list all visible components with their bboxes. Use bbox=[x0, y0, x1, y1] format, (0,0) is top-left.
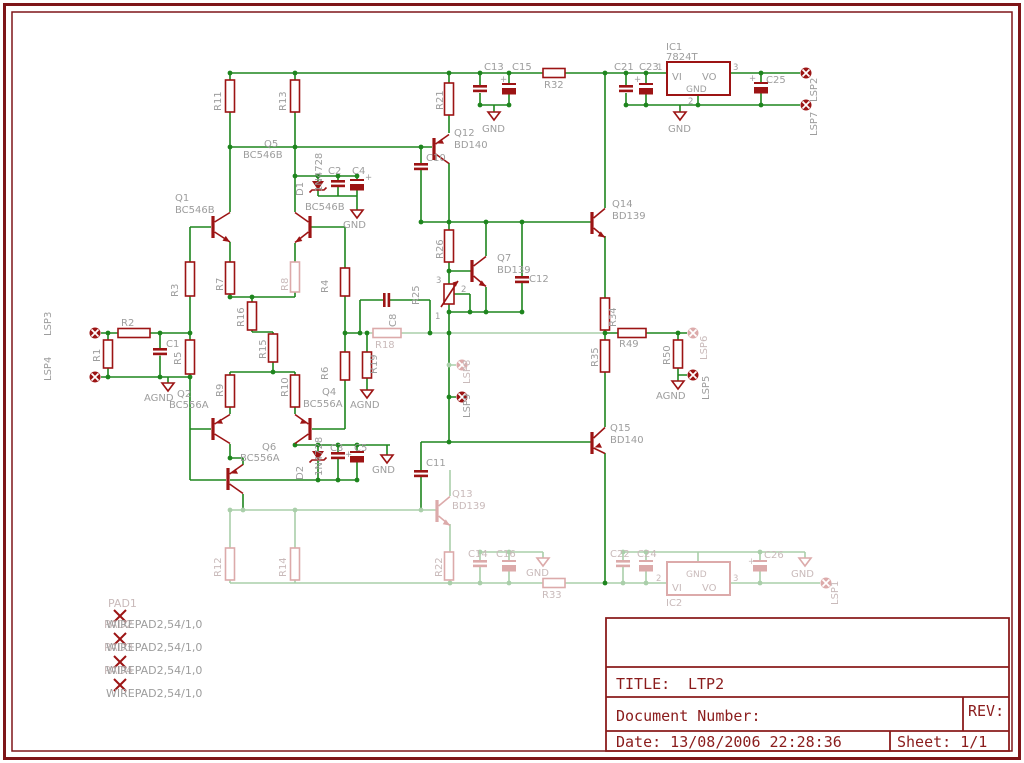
label-c23-plus: + bbox=[634, 75, 641, 85]
ic1-pin-vi: VI bbox=[672, 72, 682, 83]
gnd-symbol-c13 bbox=[488, 112, 500, 120]
label-q13: Q13 bbox=[452, 489, 473, 500]
label-q5-value: BC546B bbox=[243, 150, 283, 161]
label-r25: R25 bbox=[411, 285, 422, 305]
cap-c2 bbox=[331, 180, 345, 187]
label-r5: R5 bbox=[173, 352, 184, 365]
transistor-q2 bbox=[211, 415, 230, 444]
label-r19: R19 bbox=[369, 354, 380, 374]
label-lsp9: LSP9 bbox=[462, 394, 473, 418]
agnd-symbol-input bbox=[162, 383, 174, 391]
ic2-name: IC2 bbox=[666, 598, 682, 609]
gnd-symbol-d2 bbox=[381, 455, 393, 463]
pad-lsp6 bbox=[688, 328, 699, 339]
label-gnd-ic1: GND bbox=[668, 124, 691, 135]
label-q4-value: BC556A bbox=[303, 399, 343, 410]
label-r16: R16 bbox=[236, 307, 247, 327]
label-lsp1: LSP1 bbox=[830, 581, 841, 605]
label-r11: R11 bbox=[213, 91, 224, 111]
ic1-pin2-number: 2 bbox=[688, 97, 693, 107]
ic2-pin-vi: VI bbox=[672, 583, 682, 594]
label-gnd-c14: GND bbox=[526, 568, 549, 579]
label-c25: C25 bbox=[766, 75, 786, 86]
label-c5-plus: + bbox=[345, 450, 352, 460]
resistor-r35 bbox=[601, 340, 610, 372]
transistor-q1 bbox=[211, 213, 230, 243]
resistor-r22 bbox=[445, 552, 454, 580]
label-r49: R49 bbox=[619, 339, 639, 350]
pad-lsp3 bbox=[90, 328, 101, 339]
label-r2: R2 bbox=[121, 318, 134, 329]
label-c4: C4 bbox=[352, 166, 365, 177]
gnd-symbol-ic1 bbox=[674, 112, 686, 120]
label-q12-value: BD140 bbox=[454, 140, 488, 151]
label-q6: Q6 bbox=[262, 442, 276, 453]
resistor-r3 bbox=[186, 262, 195, 296]
resistor-r7 bbox=[226, 262, 235, 294]
label-pad1: PAD1 bbox=[108, 597, 137, 610]
label-c8: C8 bbox=[388, 314, 399, 327]
label-d2: D2 bbox=[295, 466, 306, 480]
cap-c21 bbox=[619, 85, 633, 92]
resistor-r32 bbox=[543, 69, 565, 78]
cap-c14 bbox=[473, 560, 487, 567]
label-r21: R21 bbox=[435, 90, 446, 110]
label-c4-plus: + bbox=[365, 173, 372, 183]
label-r26: R26 bbox=[435, 239, 446, 259]
cap-c13 bbox=[473, 85, 487, 92]
label-q5: Q5 bbox=[264, 139, 278, 150]
pad-lsp5 bbox=[688, 370, 699, 381]
resistor-r16 bbox=[248, 302, 257, 330]
label-lsp3: LSP3 bbox=[43, 312, 54, 336]
transistor-q4 bbox=[295, 415, 312, 444]
ic2-pin2-number: 2 bbox=[656, 574, 661, 584]
label-gnd-d1: GND bbox=[343, 220, 366, 231]
wirepad-list: PAD1 PAD2 WIREPAD2,54/1,0 PAD3 WIREPAD2,… bbox=[104, 597, 202, 700]
schematic-canvas: IC1 7824T VI VO GND 1 3 2 IC2 VI VO GND … bbox=[0, 0, 1024, 763]
resistor-r5 bbox=[186, 340, 195, 374]
label-r3: R3 bbox=[170, 284, 181, 297]
label-lsp4: LSP4 bbox=[43, 357, 54, 381]
transistor-q13 bbox=[435, 497, 450, 526]
title-label: TITLE: bbox=[616, 675, 670, 693]
label-r7: R7 bbox=[215, 278, 226, 291]
label-q1-value: BC546B bbox=[175, 205, 215, 216]
gnd-symbol-c14 bbox=[537, 558, 549, 566]
label-c23: C23 bbox=[639, 62, 659, 73]
label-c2: C2 bbox=[328, 166, 341, 177]
label-r12: R12 bbox=[213, 557, 224, 577]
sheet-label: Sheet: 1/1 bbox=[897, 733, 987, 751]
transistor-q14 bbox=[590, 209, 605, 238]
schematic-page: IC1 7824T VI VO GND 1 3 2 IC2 VI VO GND … bbox=[0, 0, 1024, 763]
cap-c22 bbox=[616, 560, 630, 567]
label-c24: C24 bbox=[637, 549, 657, 560]
label-agnd-r50: AGND bbox=[656, 391, 686, 402]
resistor-r49 bbox=[618, 329, 646, 338]
label-c13: C13 bbox=[484, 62, 504, 73]
label-q13-value: BD139 bbox=[452, 501, 486, 512]
label-q7-value: BD139 bbox=[497, 265, 531, 276]
transistor-q3 bbox=[295, 213, 312, 243]
label-d1: D1 bbox=[295, 182, 306, 196]
label-r33: R33 bbox=[542, 590, 562, 601]
label-q4: Q4 bbox=[322, 387, 336, 398]
label-q14: Q14 bbox=[612, 199, 633, 210]
ic2-regulator: IC2 VI VO GND 2 3 bbox=[656, 562, 738, 609]
resistor-r33 bbox=[543, 579, 565, 588]
pad-lsp4 bbox=[90, 372, 101, 383]
label-lsp2: LSP2 bbox=[809, 78, 820, 102]
transistor-q15 bbox=[590, 428, 605, 455]
label-r13: R13 bbox=[278, 91, 289, 111]
label-c15: C15 bbox=[512, 62, 532, 73]
label-q2: Q2 bbox=[177, 389, 191, 400]
label-d2-value: 1N4728 bbox=[314, 437, 325, 476]
label-c1: C1 bbox=[166, 339, 179, 350]
gnd-symbol-d1 bbox=[351, 210, 363, 218]
resistor-r14 bbox=[291, 548, 300, 580]
resistor-r1 bbox=[104, 340, 113, 368]
resistor-r2 bbox=[118, 329, 150, 338]
label-q15: Q15 bbox=[610, 423, 631, 434]
label-r6: R6 bbox=[320, 367, 331, 380]
cap-c8 bbox=[383, 293, 390, 307]
label-q7: Q7 bbox=[497, 253, 511, 264]
cap-c16 bbox=[502, 560, 516, 572]
label-c16: C16 bbox=[496, 549, 516, 560]
cap-c24 bbox=[639, 560, 653, 572]
resistor-r12 bbox=[226, 548, 235, 580]
label-r1: R1 bbox=[92, 349, 103, 362]
label-lsp5: LSP5 bbox=[701, 376, 712, 400]
label-r4: R4 bbox=[320, 280, 331, 293]
title-block: TITLE: LTP2 Document Number: REV: Date: … bbox=[606, 618, 1009, 751]
label-r32: R32 bbox=[544, 80, 564, 91]
label-wirepad-4: WIREPAD2,54/1,0 bbox=[106, 687, 202, 700]
cap-c1 bbox=[153, 348, 167, 355]
label-wirepad-1: WIREPAD2,54/1,0 bbox=[106, 618, 202, 631]
label-wirepad-3: WIREPAD2,54/1,0 bbox=[106, 664, 202, 677]
ic2-pin3-number: 3 bbox=[733, 574, 738, 584]
cap-c4 bbox=[350, 179, 364, 191]
label-c26-plus: + bbox=[748, 557, 755, 567]
label-q15-value: BD140 bbox=[610, 435, 644, 446]
pad-lsp2 bbox=[801, 68, 812, 79]
ic1-pin-gnd: GND bbox=[686, 85, 707, 95]
ic1-pin-vo: VO bbox=[702, 72, 717, 83]
label-q12: Q12 bbox=[454, 128, 475, 139]
resistor-r11 bbox=[226, 80, 235, 112]
ic2-pin-gnd: GND bbox=[686, 570, 707, 580]
label-c22: C22 bbox=[610, 549, 630, 560]
label-c26: C26 bbox=[764, 550, 784, 561]
ic2-pin-vo: VO bbox=[702, 583, 717, 594]
label-c25-plus: + bbox=[749, 74, 756, 84]
label-gnd-c13: GND bbox=[482, 124, 505, 135]
label-q1: Q1 bbox=[175, 193, 189, 204]
label-c21: C21 bbox=[614, 62, 634, 73]
agnd-symbol-r19 bbox=[361, 390, 373, 398]
label-r10: R10 bbox=[280, 377, 291, 397]
date-label: Date: 13/08/2006 22:28:36 bbox=[616, 733, 842, 751]
cap-c11 bbox=[414, 470, 428, 477]
label-r50: R50 bbox=[662, 345, 673, 365]
label-r18: R18 bbox=[375, 340, 395, 351]
doc-number-label: Document Number: bbox=[616, 707, 761, 725]
label-c3: C3 bbox=[330, 443, 343, 454]
label-gnd-d2: GND bbox=[372, 465, 395, 476]
label-c5: C5 bbox=[354, 443, 367, 454]
label-r15: R15 bbox=[258, 339, 269, 359]
transistor-q6 bbox=[226, 465, 243, 494]
label-r35: R35 bbox=[590, 347, 601, 367]
resistor-r15 bbox=[269, 334, 278, 362]
resistor-r18 bbox=[373, 329, 401, 338]
label-trimmer-pin1: 1 bbox=[435, 312, 440, 322]
transistor-q7 bbox=[470, 257, 486, 287]
label-r22: R22 bbox=[434, 557, 445, 577]
label-c15-plus: + bbox=[500, 75, 507, 85]
label-agnd-r19: AGND bbox=[350, 400, 380, 411]
label-q6-value: BC556A bbox=[240, 453, 280, 464]
resistor-r10 bbox=[291, 375, 300, 407]
label-r14: R14 bbox=[278, 557, 289, 577]
label-q2-value: BC556A bbox=[169, 400, 209, 411]
label-q3-value: BC546B bbox=[305, 202, 345, 213]
resistor-r4 bbox=[341, 268, 350, 296]
cap-c10 bbox=[414, 163, 428, 170]
label-r9: R9 bbox=[215, 384, 226, 397]
title-value: LTP2 bbox=[688, 675, 724, 693]
resistor-r8 bbox=[291, 262, 300, 292]
resistor-r50 bbox=[674, 340, 683, 368]
label-q14-value: BD139 bbox=[612, 211, 646, 222]
label-c11: C11 bbox=[426, 458, 446, 469]
resistor-r9 bbox=[226, 375, 235, 407]
label-trimmer-pin2: 2 bbox=[461, 285, 466, 295]
label-r34: R34 bbox=[608, 307, 619, 327]
label-gnd-ic2: GND bbox=[791, 569, 814, 580]
label-c12: C12 bbox=[529, 274, 549, 285]
ic1-value: 7824T bbox=[666, 52, 698, 63]
rev-label: REV: bbox=[968, 702, 1004, 720]
label-c10: C10 bbox=[426, 153, 446, 164]
label-r8: R8 bbox=[280, 278, 291, 291]
cap-c12 bbox=[515, 276, 529, 283]
gnd-symbol-ic2 bbox=[799, 558, 811, 566]
label-c14: C14 bbox=[468, 549, 488, 560]
resistor-r13 bbox=[291, 80, 300, 112]
label-d1-value: 1N4728 bbox=[314, 153, 325, 192]
ic1-pin3-number: 3 bbox=[733, 63, 738, 73]
label-trimmer-pin3: 3 bbox=[436, 276, 441, 286]
label-lsp8: LSP8 bbox=[462, 360, 473, 384]
resistor-r6 bbox=[341, 352, 350, 380]
label-lsp7: LSP7 bbox=[809, 112, 820, 136]
label-lsp6: LSP6 bbox=[699, 336, 710, 360]
agnd-symbol-r50 bbox=[672, 381, 684, 389]
ground-symbols bbox=[162, 112, 811, 566]
label-wirepad-2: WIREPAD2,54/1,0 bbox=[106, 641, 202, 654]
